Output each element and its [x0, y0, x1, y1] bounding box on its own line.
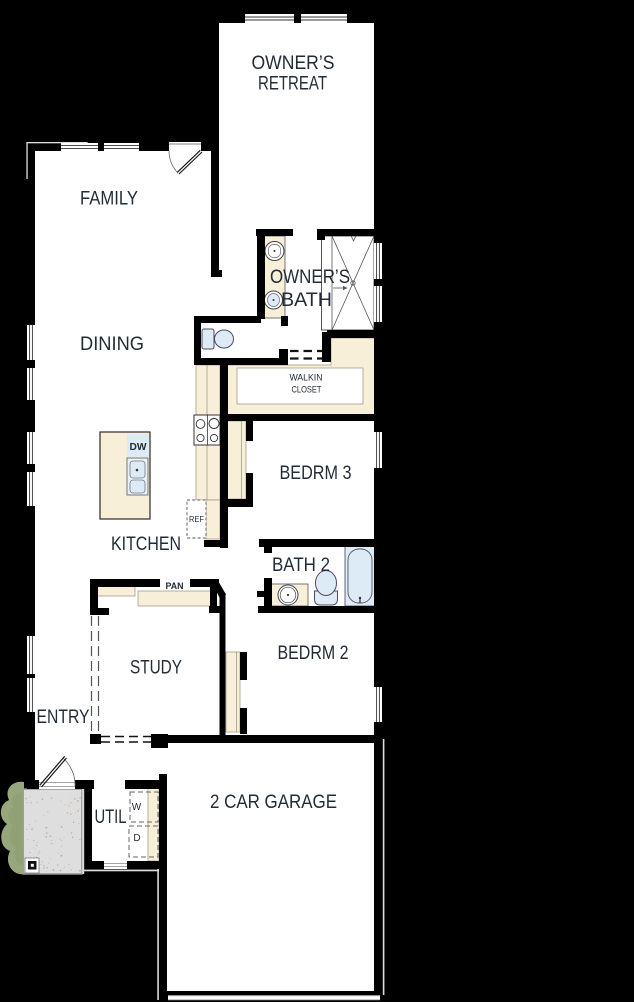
svg-text:CLOSET: CLOSET: [292, 385, 322, 396]
svg-text:D: D: [133, 833, 140, 844]
svg-text:REF: REF: [189, 515, 204, 524]
svg-text:UTIL: UTIL: [95, 807, 127, 828]
svg-text:FAMILY: FAMILY: [80, 189, 138, 210]
svg-text:STUDY: STUDY: [130, 658, 182, 679]
svg-text:DINING: DINING: [80, 334, 144, 355]
svg-text:OWNER’S: OWNER’S: [252, 53, 335, 74]
svg-text:WALKIN: WALKIN: [290, 373, 323, 384]
svg-text:BEDRM 3: BEDRM 3: [280, 463, 352, 484]
svg-text:BEDRM 2: BEDRM 2: [278, 643, 349, 664]
svg-text:KITCHEN: KITCHEN: [111, 534, 181, 555]
svg-text:DW: DW: [130, 441, 147, 453]
svg-text:RETREAT: RETREAT: [258, 74, 327, 95]
svg-text:PAN: PAN: [166, 581, 184, 592]
svg-text:BATH: BATH: [281, 290, 332, 311]
svg-text:OWNER’S: OWNER’S: [270, 267, 350, 288]
svg-text:W: W: [132, 802, 142, 813]
svg-text:BATH 2: BATH 2: [272, 555, 330, 576]
svg-text:ENTRY: ENTRY: [37, 707, 90, 728]
svg-text:2 CAR GARAGE: 2 CAR GARAGE: [210, 792, 337, 813]
